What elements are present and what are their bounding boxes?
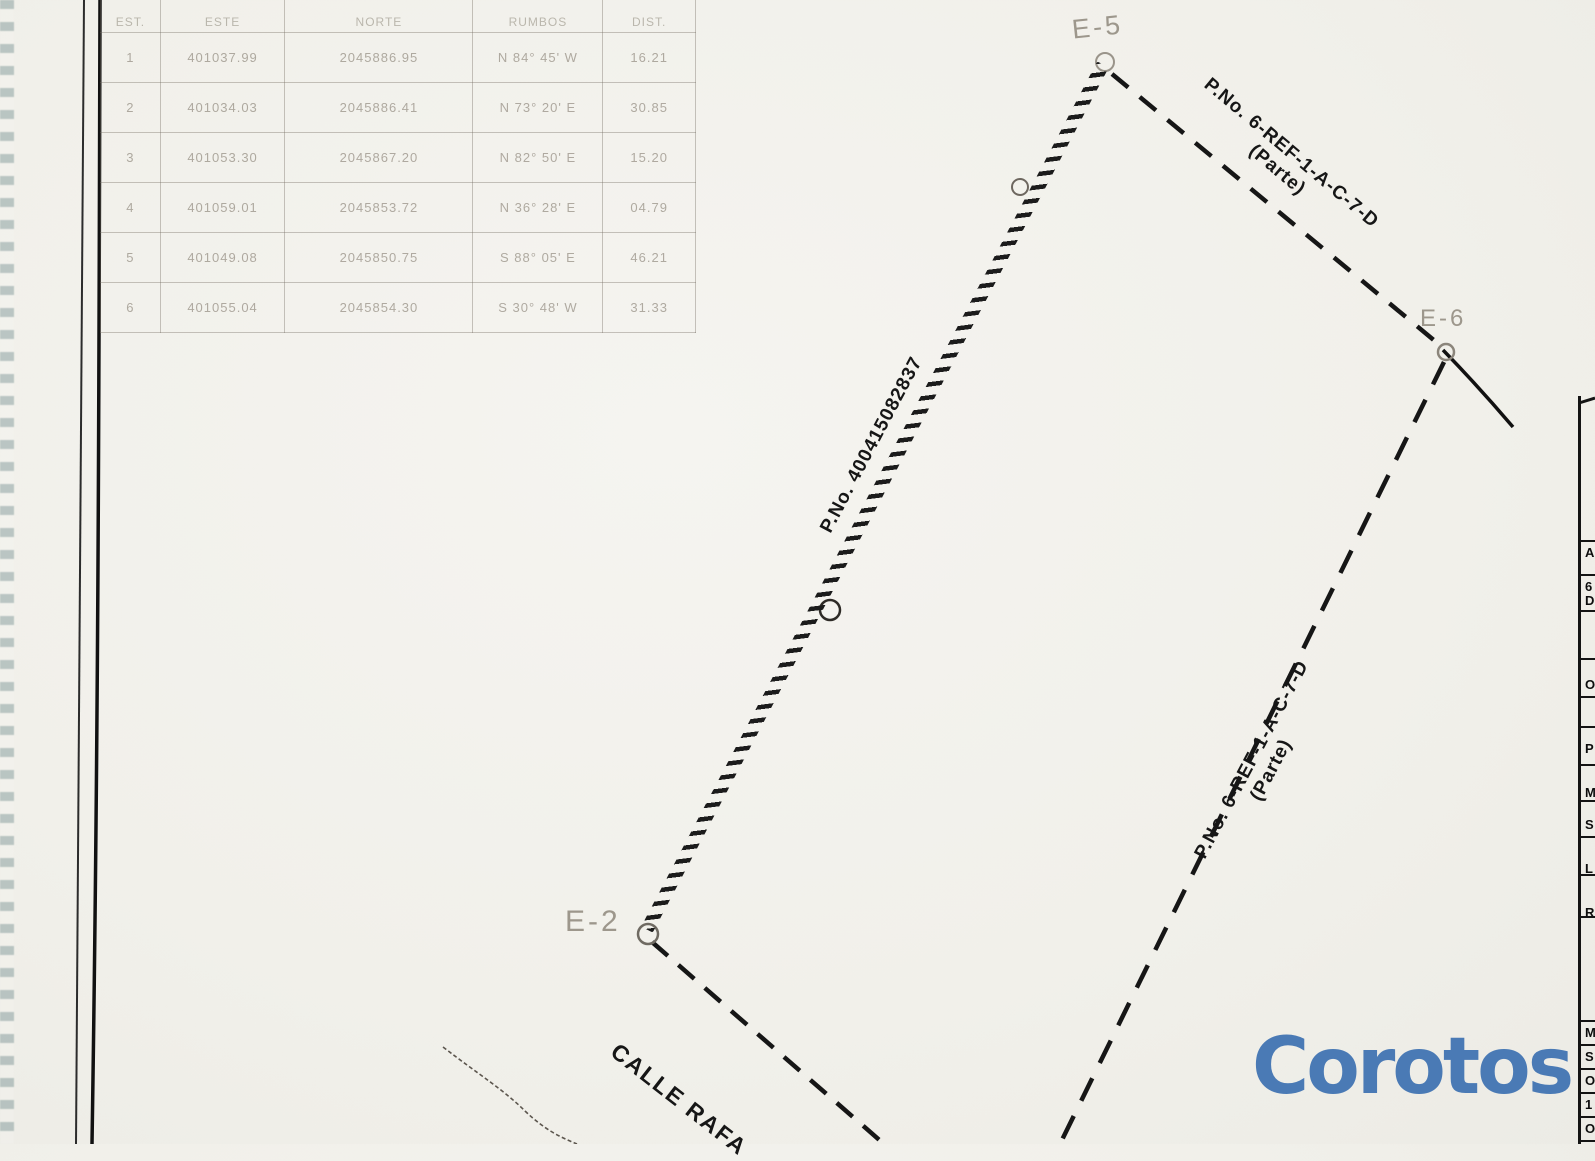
strip-letter: O	[1585, 678, 1595, 691]
cell: 2045867.20	[285, 133, 473, 183]
cell: 1	[101, 33, 161, 83]
page-edge-line-inner	[92, 0, 100, 1144]
boundary-e5-e6	[1112, 74, 1441, 346]
table-row: 3 401053.30 2045867.20 N 82° 50' E 15.20	[101, 133, 696, 183]
cell: N 84° 45' W	[473, 33, 603, 83]
strip-letter: S	[1585, 1050, 1595, 1063]
table-row: 2 401034.03 2045886.41 N 73° 20' E 30.85	[101, 83, 696, 133]
cell: 16.21	[603, 33, 696, 83]
cell: 2045854.30	[285, 283, 473, 333]
col-header-dist: DIST.	[603, 0, 696, 33]
cell: 401055.04	[160, 283, 285, 333]
strip-letter: 6	[1585, 580, 1595, 593]
strip-letter: P	[1585, 742, 1595, 755]
strip-letter: S	[1585, 818, 1595, 831]
col-header-est: EST.	[101, 0, 161, 33]
title-block-strip: A 6 D O P M S L R M S O 1 O	[1578, 396, 1595, 1144]
cell: N 82° 50' E	[473, 133, 603, 183]
cell: 401059.01	[160, 183, 285, 233]
col-header-norte: NORTE	[285, 0, 473, 33]
cell: 2	[101, 83, 161, 133]
strip-letter: A	[1585, 546, 1595, 559]
strip-letter: O	[1585, 1122, 1595, 1135]
corotos-logo-watermark: Corotos	[1252, 1022, 1571, 1112]
cell: 401053.30	[160, 133, 285, 183]
cell: S 30° 48' W	[473, 283, 603, 333]
strip-letter: 1	[1585, 1098, 1595, 1111]
cell: 5	[101, 233, 161, 283]
cell: 401034.03	[160, 83, 285, 133]
cell: 401049.08	[160, 233, 285, 283]
coordinates-table: EST. ESTE NORTE RUMBOS DIST. 1 401037.99…	[100, 0, 696, 333]
cell: N 73° 20' E	[473, 83, 603, 133]
table-row: 6 401055.04 2045854.30 S 30° 48' W 31.33	[101, 283, 696, 333]
strip-letter: O	[1585, 1074, 1595, 1087]
table-row: 4 401059.01 2045853.72 N 36° 28' E 04.79	[101, 183, 696, 233]
station-circle-mid-2	[1012, 179, 1028, 195]
cell: 31.33	[603, 283, 696, 333]
strip-letter: D	[1585, 594, 1595, 607]
cell: 4	[101, 183, 161, 233]
station-label-e6: E-6	[1420, 305, 1466, 333]
cell: 15.20	[603, 133, 696, 183]
strip-letter: L	[1585, 862, 1595, 875]
cell: 6	[101, 283, 161, 333]
table-row: 5 401049.08 2045850.75 S 88° 05' E 46.21	[101, 233, 696, 283]
station-label-e5: E-5	[1071, 9, 1125, 45]
road-edge-line	[443, 1047, 577, 1144]
solid-line-e6	[1443, 350, 1513, 427]
strip-letter: M	[1585, 1026, 1595, 1039]
cell: 2045886.95	[285, 33, 473, 83]
cell: 2045853.72	[285, 183, 473, 233]
cell: 04.79	[603, 183, 696, 233]
cell: 46.21	[603, 233, 696, 283]
cell: 30.85	[603, 83, 696, 133]
coordinates-table-header-row: EST. ESTE NORTE RUMBOS DIST.	[101, 0, 696, 33]
cell: 2045850.75	[285, 233, 473, 283]
cell: 3	[101, 133, 161, 183]
table-row: 1 401037.99 2045886.95 N 84° 45' W 16.21	[101, 33, 696, 83]
col-header-rumbos: RUMBOS	[473, 0, 603, 33]
cell: N 36° 28' E	[473, 183, 603, 233]
cell: 2045886.41	[285, 83, 473, 133]
col-header-este: ESTE	[160, 0, 285, 33]
strip-letter: M	[1585, 786, 1595, 799]
station-label-e2: E-2	[565, 905, 621, 939]
cell: S 88° 05' E	[473, 233, 603, 283]
cell: 401037.99	[160, 33, 285, 83]
page-edge-line-outer	[76, 0, 84, 1144]
strip-letter: R	[1585, 906, 1595, 919]
